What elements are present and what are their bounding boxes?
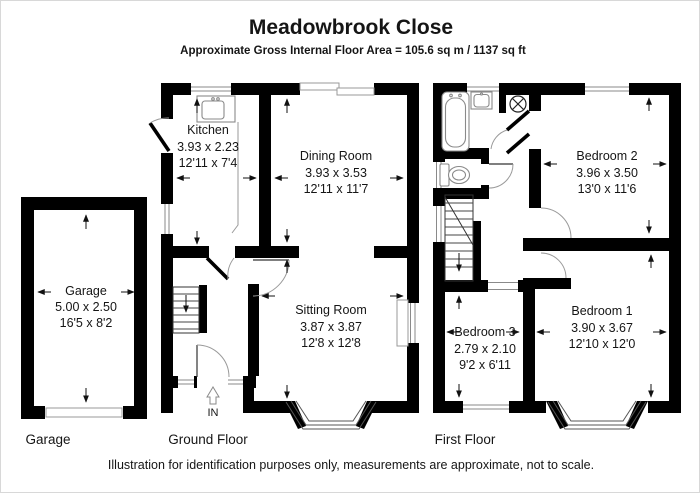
kitchen-window: [191, 83, 231, 95]
first-floorplan: Bedroom 2 3.96 x 3.50 13'0 x 11'6 Bedroo…: [433, 83, 681, 429]
page-title: Meadowbrook Close: [249, 16, 453, 39]
garage-door: [46, 408, 122, 417]
page-subtitle: Approximate Gross Internal Floor Area = …: [180, 45, 526, 57]
first-stairs-icon: [445, 195, 481, 281]
dining-room-metric: 3.93 x 3.53: [305, 166, 367, 180]
landing-window: [433, 206, 445, 242]
garage-floorplan: Garage 5.00 x 2.50 16'5 x 8'2: [21, 197, 147, 419]
dining-room-imperial: 12'11 x 11'7: [304, 182, 369, 196]
floorplan-page: Meadowbrook Close Approximate Gross Inte…: [0, 0, 700, 493]
sitting-room-metric: 3.87 x 3.87: [300, 320, 362, 334]
kitchen-hall-door: [207, 258, 234, 279]
bedroom2-window: [585, 83, 629, 95]
dining-window: [300, 83, 374, 95]
bedroom3-room-metric: 2.79 x 2.10: [454, 342, 516, 356]
toilet-icon: [440, 164, 470, 186]
bedroom1-bay-window: [546, 401, 648, 429]
sitting-room-imperial: 12'8 x 12'8: [301, 336, 361, 350]
ground-floorplan: IN Kitchen 3.93 x 2.23 12'11 x 7'4 Dinin…: [150, 83, 419, 429]
kitchen-counter-line: [232, 122, 238, 233]
bedroom3-window: [463, 401, 509, 413]
kitchen-room-name: Kitchen: [187, 123, 229, 137]
garage-floor-label: Garage: [25, 432, 70, 447]
bathroom-sink-icon: [471, 92, 492, 109]
garage-room-name: Garage: [65, 284, 107, 298]
garage-room-imperial: 16'5 x 8'2: [60, 316, 113, 330]
bedroom2-room-imperial: 13'0 x 11'6: [578, 182, 637, 196]
disclaimer-text: Illustration for identification purposes…: [108, 458, 594, 472]
bedroom1-room-imperial: 12'10 x 12'0: [569, 337, 636, 351]
dining-room-name: Dining Room: [300, 149, 372, 163]
kitchen-side-window: [161, 204, 173, 234]
bedroom1-room-name: Bedroom 1: [571, 304, 632, 318]
front-door: [197, 345, 229, 377]
kitchen-room-metric: 3.93 x 2.23: [177, 140, 239, 154]
front-sidelight-left: [178, 376, 194, 388]
bathtub-icon: [442, 92, 469, 151]
first-floor-label: First Floor: [435, 432, 496, 447]
extractor-fan-icon: [510, 96, 526, 112]
bay-window: [284, 401, 378, 429]
wc-door: [489, 164, 513, 188]
bedroom2-room-name: Bedroom 2: [576, 149, 637, 163]
bedroom2-room-metric: 3.96 x 3.50: [576, 166, 638, 180]
bedroom3-room-imperial: 9'2 x 6'11: [459, 358, 511, 372]
kitchen-room-imperial: 12'11 x 7'4: [179, 156, 238, 170]
ground-floor-label: Ground Floor: [168, 432, 248, 447]
front-sidelight-right: [228, 376, 243, 388]
bedroom1-room-metric: 3.90 x 3.67: [571, 321, 633, 335]
sitting-room-name: Sitting Room: [295, 303, 367, 317]
entrance-label: IN: [208, 407, 219, 419]
bedroom2-door: [541, 208, 571, 238]
front-door-gap: [197, 376, 228, 388]
floorplan-canvas: Meadowbrook Close Approximate Gross Inte…: [1, 1, 700, 493]
bedroom3-room-name: Bedroom 3: [454, 325, 515, 339]
sitting-room-side-window: [397, 300, 419, 346]
stairs-icon: [173, 285, 207, 333]
garage-room-metric: 5.00 x 2.50: [55, 300, 117, 314]
in-arrow-icon: [207, 387, 219, 404]
bathroom-door: [491, 111, 529, 153]
bedroom1-door: [541, 253, 566, 278]
kitchen-sink-icon: [197, 96, 235, 122]
bedroom3-doorway: [488, 280, 518, 292]
